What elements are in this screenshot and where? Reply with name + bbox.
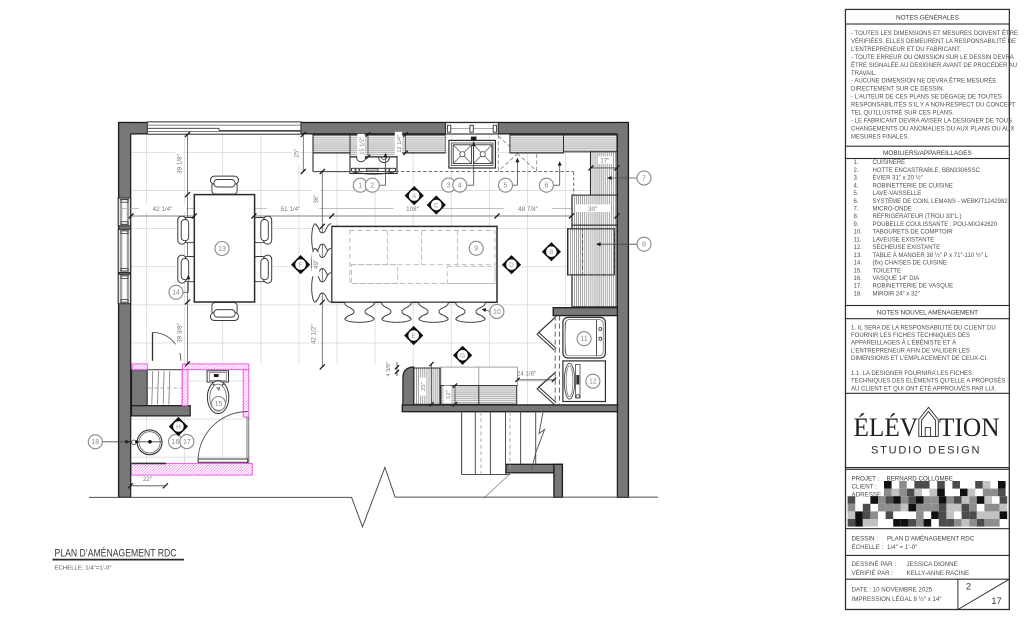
svg-text:- AUCUNE DIMENSION NE DEVRA ÊT: - AUCUNE DIMENSION NE DEVRA ÊTRE MESURÉE	[851, 77, 996, 85]
svg-text:42 1/4″: 42 1/4″	[153, 206, 174, 213]
svg-text:- TOUTES LES DIMENSIONS ET MES: - TOUTES LES DIMENSIONS ET MESURES DOIVE…	[851, 29, 1018, 37]
svg-text:9.: 9.	[854, 222, 859, 228]
svg-text:POUBELLE COULISSANTE : POU-MX2: POUBELLE COULISSANTE : POU-MX242620	[873, 222, 998, 228]
svg-text:17: 17	[991, 596, 1002, 607]
svg-text:- L’AUTEUR DE CES PLANS SE DÉG: - L’AUTEUR DE CES PLANS SE DÉGAGE DE TOU…	[851, 94, 1002, 101]
svg-text:51 1/4″: 51 1/4″	[281, 206, 302, 213]
svg-text:D: D	[509, 262, 514, 269]
svg-text:- LE FABRICANT DEVRA AVISER LA: - LE FABRICANT DEVRA AVISER LA DESIGNER …	[851, 118, 1012, 124]
svg-text:1.1. LA DESIGNER FOURNIRA LES: 1.1. LA DESIGNER FOURNIRA LES FICHES	[851, 371, 972, 377]
svg-text:4 3/8″: 4 3/8″	[386, 362, 392, 376]
svg-text:TECHNIQUES DES ÉLÉMENTS QU’ELL: TECHNIQUES DES ÉLÉMENTS QU’ELLE A PROPOS…	[851, 378, 1005, 385]
svg-text:11.: 11.	[854, 237, 862, 243]
svg-text:(6x) CHAISES DE CUISINE: (6x) CHAISES DE CUISINE	[873, 261, 947, 267]
svg-text:17″: 17″	[600, 158, 610, 165]
svg-text:E: E	[412, 333, 416, 340]
svg-text:17.: 17.	[854, 284, 863, 290]
svg-text:DIRECTEMENT SUR CE DESSIN.: DIRECTEMENT SUR CE DESSIN.	[851, 87, 945, 93]
svg-text:3.: 3.	[854, 176, 859, 182]
svg-text:13: 13	[218, 246, 226, 253]
svg-text:MIROIR 24″ x 32″: MIROIR 24″ x 32″	[873, 291, 921, 297]
svg-text:B: B	[549, 249, 553, 256]
svg-text:F: F	[299, 262, 303, 269]
svg-text:48 7/8″: 48 7/8″	[518, 206, 539, 213]
svg-text:TABLE À MANGER 38 ½″ P x 71″-1: TABLE À MANGER 38 ½″ P x 71″-110 ½″ L	[873, 252, 989, 259]
svg-text:49″: 49″	[313, 259, 320, 269]
svg-text:ÊTRE SIGNALÉE AU DESIGNER AVAN: ÊTRE SIGNALÉE AU DESIGNER AVANT DE PROCÉ…	[851, 61, 1017, 69]
svg-text:5: 5	[504, 183, 508, 190]
svg-text:KELLY-ANNE RACINE: KELLY-ANNE RACINE	[907, 570, 970, 577]
svg-text:ÉLÉV: ÉLÉV	[854, 412, 919, 442]
svg-text:LAVEUSE EXISTANTE: LAVEUSE EXISTANTE	[873, 237, 935, 243]
svg-text:RÉFRIGÉRATEUR (TROU 33″L.): RÉFRIGÉRATEUR (TROU 33″L.)	[873, 213, 962, 220]
svg-text:3: 3	[447, 183, 451, 190]
svg-text:RESPONSABILITÉS S’IL Y A NON-R: RESPONSABILITÉS S’IL Y A NON-RESPECT DU …	[851, 102, 1016, 109]
svg-text:DESSIN :: DESSIN :	[852, 535, 879, 542]
svg-text:2.: 2.	[854, 168, 859, 174]
svg-text:SYSTÈME DE COIN, LEMANS - WEBK: SYSTÈME DE COIN, LEMANS - WEBKIT1242982	[873, 198, 1009, 205]
svg-text:15.: 15.	[854, 268, 863, 274]
svg-text:C: C	[434, 202, 439, 209]
svg-text:6: 6	[544, 183, 548, 190]
svg-text:ÉVIER 31″ x 20 ½″: ÉVIER 31″ x 20 ½″	[873, 175, 924, 182]
svg-text:30″: 30″	[588, 206, 598, 213]
svg-text:12.: 12.	[854, 245, 863, 251]
svg-text:PROJET :: PROJET :	[852, 476, 880, 483]
svg-text:7.: 7.	[854, 207, 859, 213]
svg-text:14.: 14.	[854, 261, 863, 267]
svg-text:PLAN D’AMÉNAGEMENT RDC: PLAN D’AMÉNAGEMENT RDC	[887, 535, 975, 542]
svg-text:CLIENT :: CLIENT :	[852, 484, 878, 491]
svg-text:NOTES GÉNÉRALES: NOTES GÉNÉRALES	[896, 13, 959, 22]
svg-text:11: 11	[580, 336, 587, 343]
svg-text:FOURNIR LES FICHES TECHNIQUES: FOURNIR LES FICHES TECHNIQUES DES	[851, 333, 970, 339]
svg-text:TION: TION	[939, 412, 1000, 442]
svg-text:13.: 13.	[854, 253, 863, 259]
svg-text:12″: 12″	[446, 390, 452, 399]
svg-text:9: 9	[474, 246, 478, 253]
svg-text:42 1/2″: 42 1/2″	[310, 324, 317, 345]
svg-text:SÉCHEUSE EXISTANTE: SÉCHEUSE EXISTANTE	[873, 244, 941, 251]
svg-text:DATE : 10 NOVEMBRE 2025: DATE : 10 NOVEMBRE 2025	[852, 586, 933, 593]
svg-text:8: 8	[642, 242, 646, 249]
svg-text:2: 2	[370, 183, 374, 190]
svg-text:G: G	[460, 353, 465, 360]
svg-text:TRAVAIL.: TRAVAIL.	[851, 71, 877, 77]
svg-text:PLAN D’AMÉNAGEMENT RDC: PLAN D’AMÉNAGEMENT RDC	[55, 547, 177, 560]
svg-text:ROBINETTERIE DE VASQUE: ROBINETTERIE DE VASQUE	[873, 284, 954, 290]
svg-text:1/4″ = 1’-0″: 1/4″ = 1’-0″	[887, 544, 918, 551]
svg-text:- TOUTE ERREUR OU OMISSION SUR: - TOUTE ERREUR OU OMISSION SUR LE DESSIN…	[851, 55, 1014, 61]
svg-text:JESSICA DIONNE: JESSICA DIONNE	[907, 561, 958, 568]
svg-text:TABOURETS DE COMPTOIR: TABOURETS DE COMPTOIR	[873, 230, 954, 236]
svg-text:1.: 1.	[854, 160, 859, 166]
svg-text:APPAREILLAGES À L’ÉBÉNISTE ET: APPAREILLAGES À L’ÉBÉNISTE ET À	[851, 340, 956, 347]
svg-text:ÉCHELLE :: ÉCHELLE :	[852, 544, 884, 551]
svg-text:VÉRIFIÉES. ELLES DEMEURENT LA: VÉRIFIÉES. ELLES DEMEURENT LA RESPONSABI…	[851, 38, 1016, 45]
svg-text:10: 10	[493, 309, 501, 316]
svg-text:DIMENSIONS ET L’EMPLACEMENT DE: DIMENSIONS ET L’EMPLACEMENT DE CEUX-CI.	[851, 356, 988, 362]
svg-text:ÉCHELLE: 1/4″=1’-0″: ÉCHELLE: 1/4″=1’-0″	[55, 564, 112, 571]
svg-text:H: H	[176, 424, 181, 431]
svg-text:1. IL SERA DE LA RESPONSABILIT: 1. IL SERA DE LA RESPONSABILITÉ DU CLIEN…	[851, 325, 996, 332]
svg-text:MOBILIERS/APPAREILLAGES: MOBILIERS/APPAREILLAGES	[883, 150, 972, 157]
svg-text:5.: 5.	[854, 191, 859, 197]
svg-text:25″: 25″	[293, 148, 300, 158]
svg-text:14: 14	[172, 290, 180, 297]
svg-text:TOILETTE: TOILETTE	[873, 268, 902, 274]
svg-text:HOTTE ENCASTRABLE, BBN3306SSC: HOTTE ENCASTRABLE, BBN3306SSC	[873, 168, 981, 174]
svg-text:6.: 6.	[854, 199, 859, 205]
svg-text:36″: 36″	[313, 194, 320, 204]
svg-text:CUISINÈRE: CUISINÈRE	[873, 159, 906, 166]
svg-text:17: 17	[183, 439, 191, 446]
svg-text:16.: 16.	[854, 276, 863, 282]
svg-text:12: 12	[589, 379, 597, 386]
svg-text:24 1/8″: 24 1/8″	[517, 370, 537, 377]
svg-text:39 1/8″: 39 1/8″	[177, 153, 184, 174]
svg-text:LAVE-VAISSELLE: LAVE-VAISSELLE	[873, 191, 922, 197]
svg-text:CHANGEMENTS OU ANOMALIES DU AU: CHANGEMENTS OU ANOMALIES DU AUX PLANS OU…	[851, 126, 1014, 132]
svg-text:15 1/2″: 15 1/2″	[359, 137, 365, 155]
svg-text:NOTES NOUVEL AMÉNAGEMENT: NOTES NOUVEL AMÉNAGEMENT	[877, 308, 978, 317]
svg-text:L’ENTREPRENEUR AFIN DE VALIDER: L’ENTREPRENEUR AFIN DE VALIDER LES	[851, 348, 970, 354]
svg-text:7: 7	[642, 175, 646, 182]
svg-text:MESURES FINALES.: MESURES FINALES.	[851, 134, 909, 140]
svg-text:ROBINETTERIE DE CUISINE: ROBINETTERIE DE CUISINE	[873, 183, 953, 189]
svg-text:15: 15	[215, 401, 223, 408]
svg-text:4: 4	[458, 183, 462, 190]
svg-text:VASQUE 14″ DIA: VASQUE 14″ DIA	[873, 276, 920, 282]
svg-text:18.: 18.	[854, 291, 863, 297]
svg-text:TEL QU’ILLUSTRÉ SUR CES PLANS.: TEL QU’ILLUSTRÉ SUR CES PLANS.	[851, 110, 954, 117]
svg-text:AU CLIENT ET QUI ONT ÉTÉ APPRO: AU CLIENT ET QUI ONT ÉTÉ APPROUVÉS PAR L…	[851, 385, 997, 392]
svg-text:16: 16	[172, 439, 180, 446]
svg-text:2: 2	[966, 582, 971, 593]
svg-text:STUDIO DESIGN: STUDIO DESIGN	[871, 445, 981, 457]
svg-text:4.: 4.	[854, 183, 859, 189]
svg-text:10.: 10.	[854, 230, 863, 236]
svg-text:18: 18	[91, 439, 99, 446]
svg-text:25″: 25″	[421, 382, 427, 391]
svg-text:1: 1	[358, 183, 362, 190]
svg-text:VÉRIFIÉ PAR :: VÉRIFIÉ PAR :	[852, 570, 894, 577]
svg-text:108″: 108″	[406, 206, 420, 213]
svg-text:39 3/8″: 39 3/8″	[177, 322, 184, 343]
svg-text:MICRO-ONDE: MICRO-ONDE	[873, 207, 912, 213]
svg-text:12 1/4″: 12 1/4″	[397, 135, 403, 153]
svg-text:8.: 8.	[854, 214, 859, 220]
svg-text:IMPRESSION LÉGAL 8 ½″ x 14″: IMPRESSION LÉGAL 8 ½″ x 14″	[852, 596, 943, 603]
svg-text:22″: 22″	[143, 476, 153, 483]
svg-text:DESSINÉ PAR :: DESSINÉ PAR :	[852, 561, 897, 568]
svg-text:L’ENTREPRENEUR ET DU FABRICANT: L’ENTREPRENEUR ET DU FABRICANT.	[851, 47, 961, 53]
